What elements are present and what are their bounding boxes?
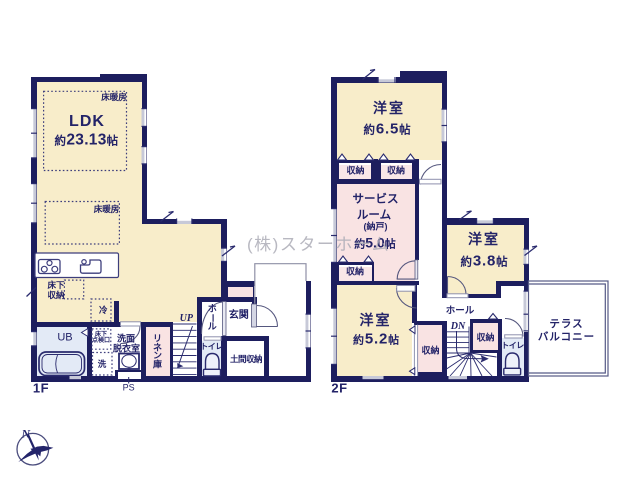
svg-text:N: N (21, 427, 32, 441)
